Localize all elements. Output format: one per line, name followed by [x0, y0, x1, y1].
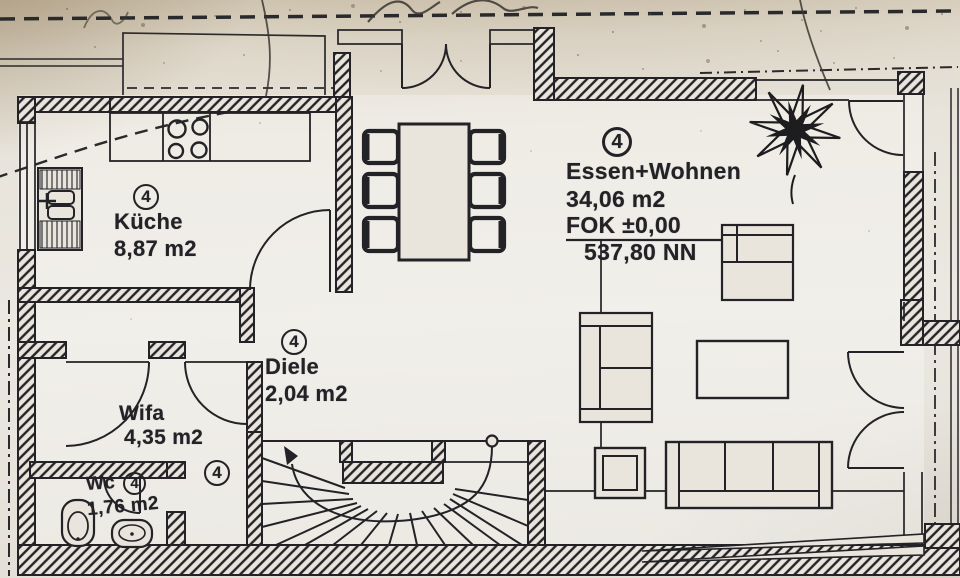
kitchen-sink-icon — [38, 168, 82, 250]
washbasin-icon — [112, 520, 152, 547]
room-floor-level: FOK ±0,00 — [566, 214, 681, 237]
room-label-essen-wohnen: Essen+Wohnen — [566, 160, 741, 183]
entrance-door-arc-left — [402, 44, 446, 88]
room-area-diele: 2,04 m2 — [265, 383, 348, 405]
floor-plan-scan: 4 Küche 8,87 m2 4 Diele 2,04 m2 4 Essen+… — [0, 0, 960, 578]
room-marker-wc: 4 — [123, 472, 146, 495]
scan-speckles — [0, 0, 2, 2]
room-area-kueche: 8,87 m2 — [114, 238, 197, 260]
room-label-diele: Diele — [265, 356, 319, 378]
room-area-essen-wohnen: 34,06 m2 — [566, 188, 666, 211]
cabinet — [722, 225, 793, 300]
floor-plan-drawing — [0, 0, 960, 578]
room-area-wifa: 4,35 m2 — [124, 427, 203, 448]
room-label-wc: Wc — [85, 473, 115, 494]
room-marker-kueche: 4 — [133, 184, 159, 210]
side-table — [595, 448, 645, 498]
dining-table — [399, 124, 469, 260]
room-marker-wifa: 4 — [204, 460, 230, 486]
room-elevation: 537,80 NN — [584, 241, 697, 264]
room-label-wifa: Wifa — [119, 403, 164, 424]
room-marker-essen-wohnen: 4 — [602, 127, 632, 157]
sofa-three-seat — [666, 442, 832, 508]
room-label-kueche: Küche — [114, 211, 183, 233]
room-marker-diele: 4 — [281, 329, 307, 355]
exterior-structure — [123, 33, 325, 95]
stair-walk-start-circle — [487, 436, 498, 447]
sofa-two-seat — [580, 313, 652, 422]
entrance-door-arc-right — [446, 44, 490, 88]
